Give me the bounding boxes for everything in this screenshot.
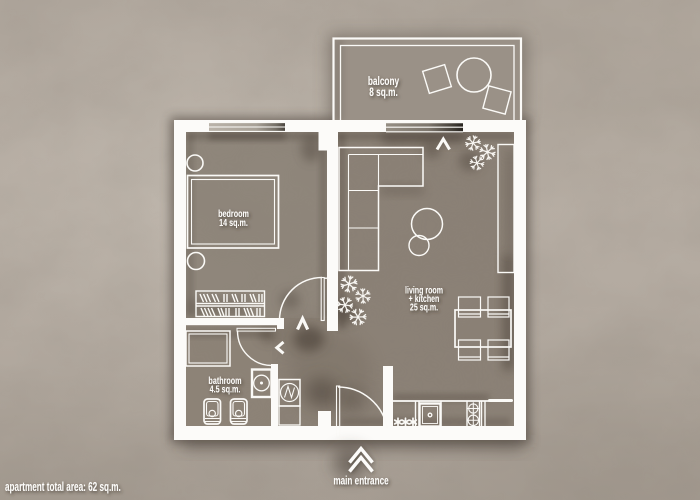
svg-text:25 sq.m.: 25 sq.m. xyxy=(410,301,438,312)
svg-text:main entrance: main entrance xyxy=(333,475,389,488)
svg-text:apartment total area: 62 sq.m.: apartment total area: 62 sq.m. xyxy=(5,480,121,494)
svg-text:4.5 sq.m.: 4.5 sq.m. xyxy=(210,383,241,394)
svg-text:14 sq.m.: 14 sq.m. xyxy=(219,217,248,228)
svg-text:8 sq.m.: 8 sq.m. xyxy=(369,87,398,100)
